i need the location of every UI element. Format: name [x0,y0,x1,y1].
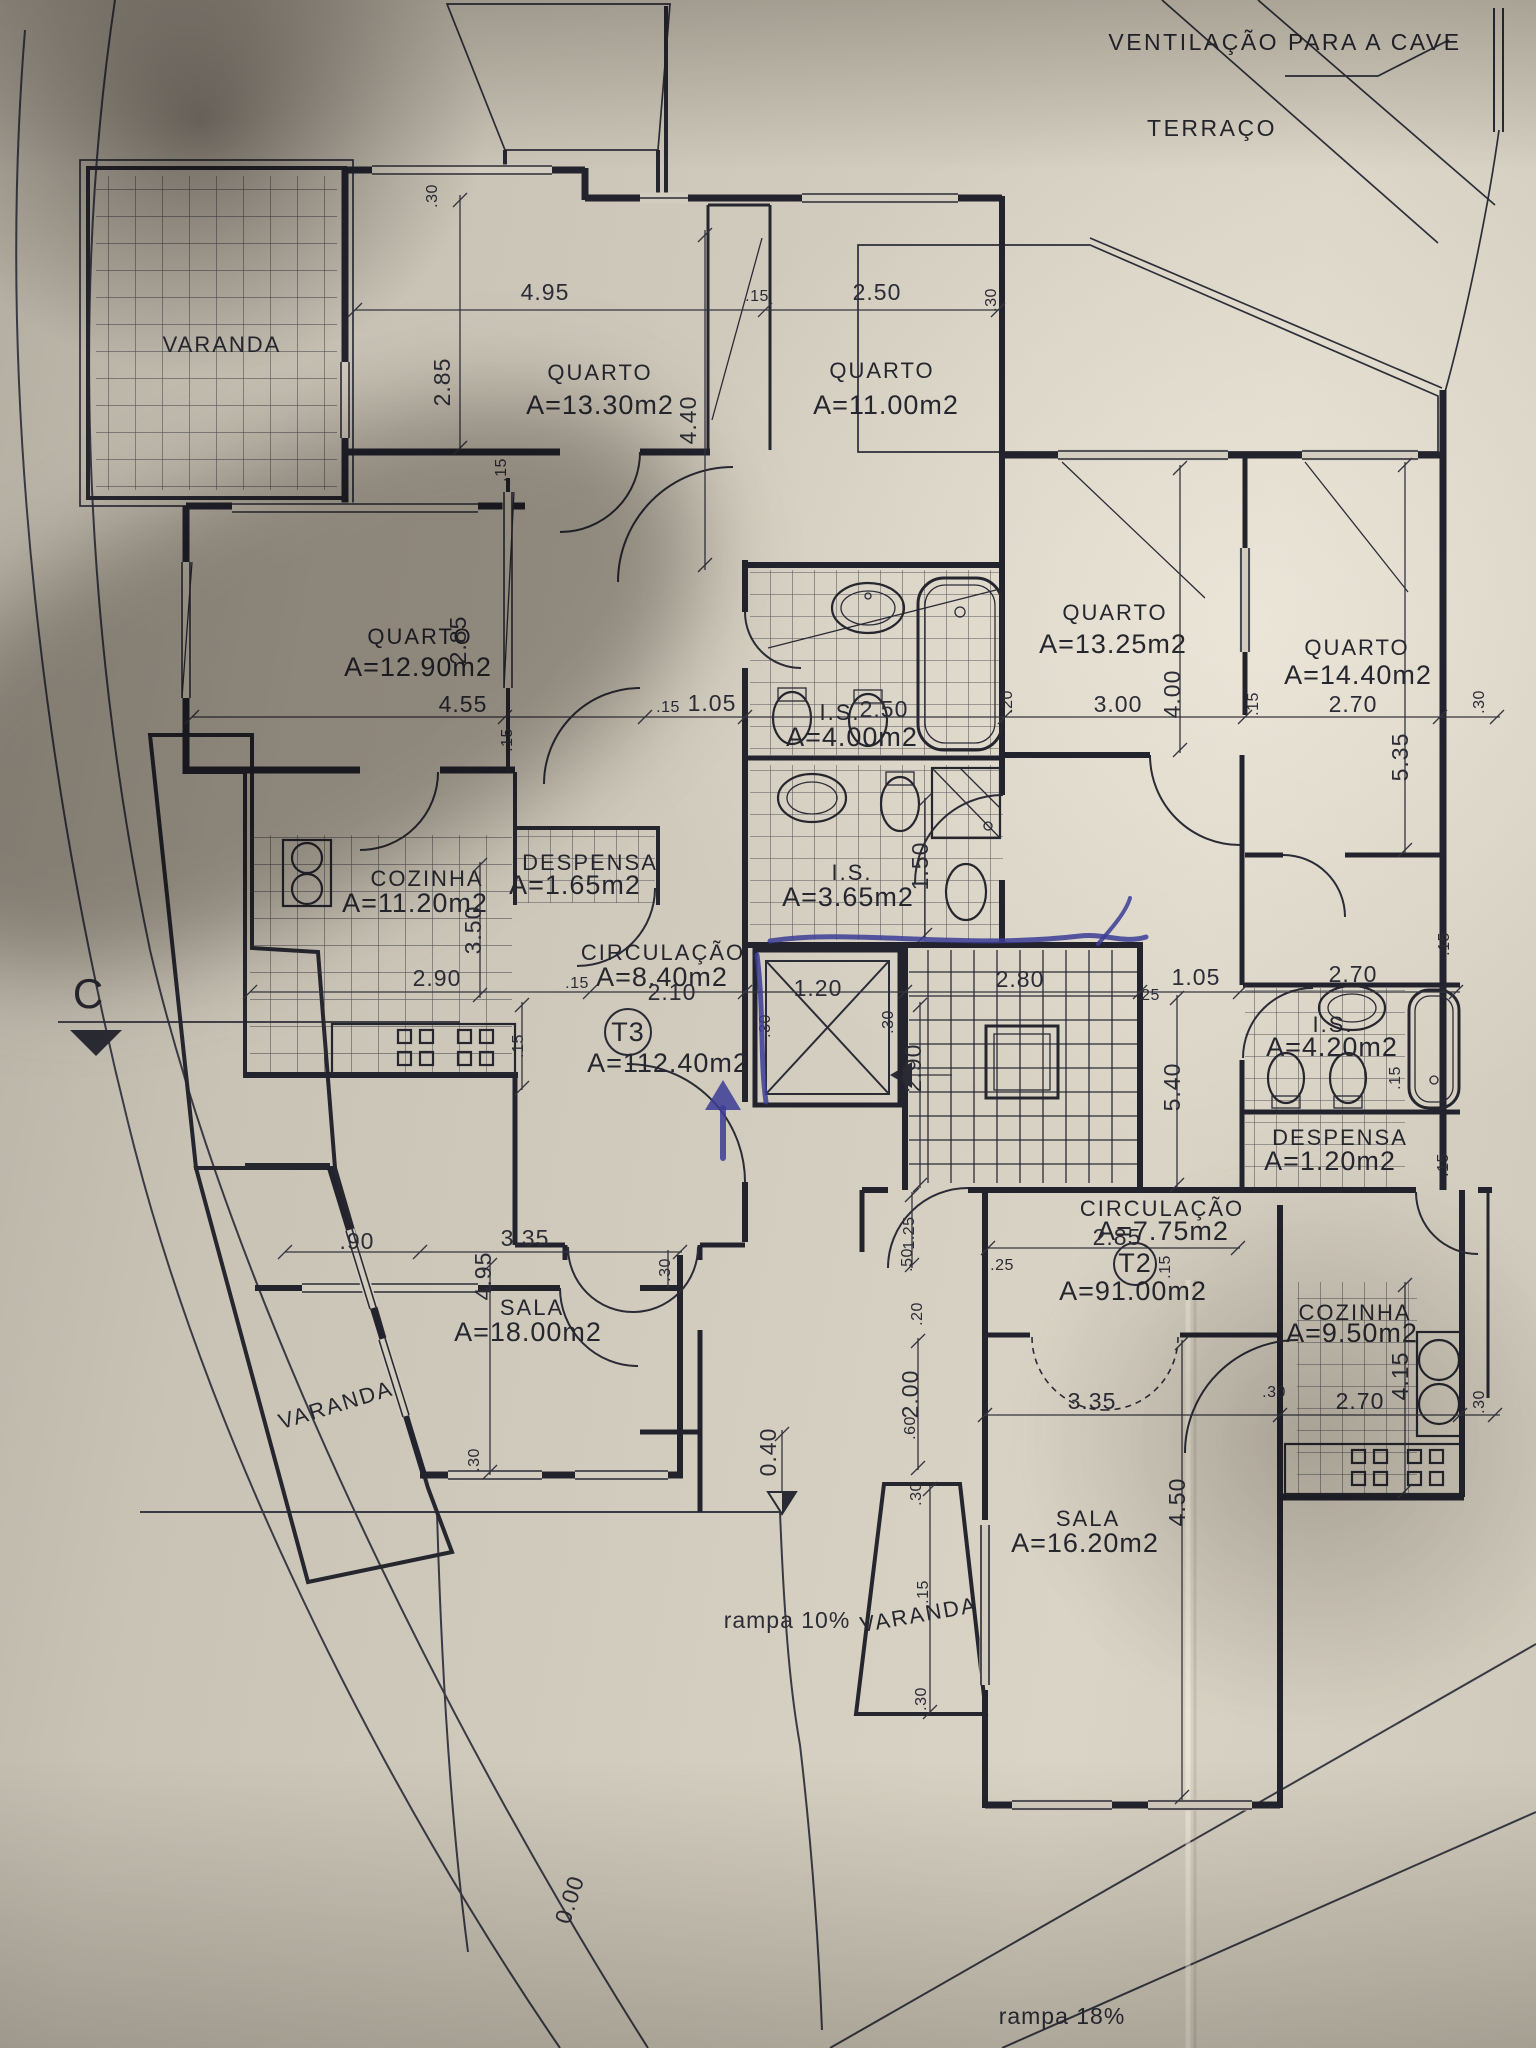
floor-plan-photo: VENTILAÇÃO PARA A CAVE TERRAÇO C rampa 1… [0,0,1536,2048]
dim: .25 [1136,987,1160,1004]
dim: .15 [745,288,769,305]
dim: 4.40 [675,396,701,445]
benchmark-triangle [768,1492,796,1514]
window [575,1471,668,1479]
dim: 4.00 [1159,670,1185,719]
t2-area: A=91.00m2 [1059,1276,1207,1306]
window [302,1284,478,1292]
level-0-label: 0.00 [549,1872,589,1926]
window [981,1525,989,1685]
dim: 3.35 [1068,1388,1117,1414]
window [341,362,349,438]
dim: 2.50 [860,696,909,722]
dim: .30 [1262,1384,1286,1401]
t2-code: T2 [1118,1248,1152,1278]
dim: .60 [902,1416,919,1440]
t3-code: T3 [611,1017,645,1047]
north-arrow-pen [705,1080,741,1158]
dim: 4.15 [1387,1352,1413,1401]
t3-quarto2-name: QUARTO [829,358,934,383]
dim: 2.70 [1336,1388,1385,1414]
window [1058,451,1228,459]
dim: 2.85 [429,358,455,407]
dim: .50 [899,1248,916,1272]
dim: .30 [466,1448,483,1472]
dim: 5.35 [1387,733,1413,782]
dim: 5.40 [1159,1063,1185,1112]
dim: 2.90 [413,965,462,991]
dim: 4.50 [1164,1478,1190,1527]
dim: .15 [1387,1066,1404,1090]
dim: .15 [565,975,589,992]
dim: 2.10 [648,979,697,1005]
dim: 1.50 [907,842,933,891]
t2-quarto2-name: QUARTO [1304,635,1409,660]
dim: .25 [990,1257,1014,1274]
dim: 1.05 [688,690,737,716]
level-040-label: 0.40 [755,1428,781,1477]
t2-unit-tag: T2 A=91.00m2 [1059,1243,1207,1306]
t2-cozinha-area: A=9.50m2 [1286,1318,1418,1348]
t2-quarto1-name: QUARTO [1062,600,1167,625]
window [504,492,514,688]
dim: .15 [1157,1255,1174,1279]
dim: .30 [983,288,1000,312]
dim: .15 [493,458,510,482]
t3-quarto1-name: QUARTO [547,360,652,385]
dim: .30 [1471,690,1488,714]
bathtub [1409,990,1459,1108]
dim: .30 [913,1687,930,1711]
t3-is1-area: A=4.00m2 [786,722,918,752]
t3-despensa-area: A=1.65m2 [509,870,641,900]
dim: 1.20 [794,975,843,1001]
window [372,166,552,174]
dim: 4.95 [521,279,570,305]
dim: .30 [1471,1390,1488,1414]
t3-sala-area: A=18.00m2 [454,1317,602,1347]
t2-quarto2-area: A=14.40m2 [1284,660,1432,690]
window [802,194,958,202]
window [448,1471,542,1479]
floor-plan-drawing: VENTILAÇÃO PARA A CAVE TERRAÇO C rampa 1… [0,0,1536,2048]
dim: .15 [510,1034,527,1058]
dim: 2.80 [996,966,1045,992]
t3-unit-tag: T3 A=112.40m2 [587,1009,749,1078]
rampa-18-label: rampa 18% [999,2003,1126,2029]
window [1302,451,1418,459]
dim: .15 [499,728,516,752]
dim: .20 [999,690,1016,714]
window [1012,1801,1112,1809]
t2-sala-area: A=16.20m2 [1011,1528,1159,1558]
t2-is1-area: A=4.20m2 [1266,1032,1398,1062]
dim: 2.85 [1093,1224,1142,1250]
dim: .15 [1435,1153,1452,1177]
t3-varanda-top: VARANDA [163,332,282,357]
dim: .15 [1245,692,1262,716]
t3-quarto1-area: A=13.30m2 [526,390,674,420]
window [182,562,192,698]
dim: 1.05 [1172,964,1221,990]
t2-quarto1-area: A=13.25m2 [1039,629,1187,659]
dim: .30 [657,1258,674,1282]
rampa-10-label: rampa 10% [724,1607,851,1633]
dim: .15 [656,699,680,716]
dim: 2.50 [853,279,902,305]
dim: 3.50 [460,906,486,955]
dim: .20 [909,1302,926,1326]
t2-despensa-area: A=1.20m2 [1264,1146,1396,1176]
note-terraco: TERRAÇO [1147,115,1277,141]
t3-varanda-bottom: VARANDA [275,1376,396,1435]
dim: .30 [880,1010,897,1034]
dim: 2.70 [1329,961,1378,987]
dim: 2.00 [897,1370,923,1419]
dim: 1.25 [901,1216,918,1249]
section-label: C [73,970,103,1017]
window [1241,548,1249,652]
elevator [755,950,900,1105]
dim: 3.00 [1094,691,1143,717]
t3-area: A=112.40m2 [587,1048,749,1078]
dim: 2.85 [445,616,471,665]
window [1148,1801,1252,1809]
dim: .15 [1436,932,1453,956]
t3-is2-area: A=3.65m2 [782,882,914,912]
window [232,504,478,512]
section-arrow [70,1030,122,1056]
dim: .90 [340,1228,375,1254]
dim: 3.35 [501,1225,550,1251]
dim: .30 [908,1482,925,1506]
t3-quarto2-area: A=11.00m2 [813,390,959,420]
dim: 2.70 [1329,691,1378,717]
note-ventilacao: VENTILAÇÃO PARA A CAVE [1108,29,1461,55]
dim: .15 [915,1580,932,1604]
dim: 2.90 [900,1044,926,1093]
dim: .30 [424,184,441,208]
dim: 4.95 [470,1252,496,1301]
dim: 4.55 [439,691,488,717]
